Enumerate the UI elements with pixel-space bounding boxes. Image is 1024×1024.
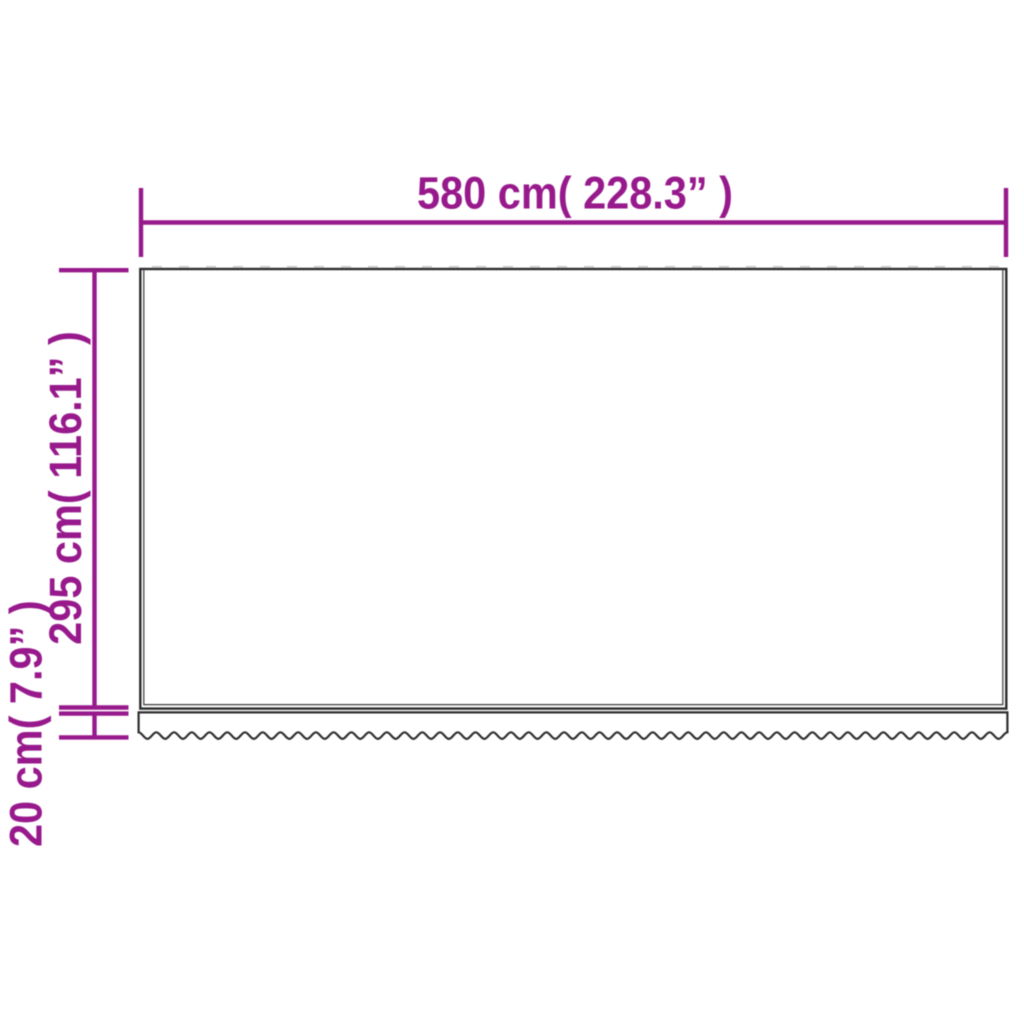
svg-text:295 cm( 116.1” ): 295 cm( 116.1” ) xyxy=(41,331,91,645)
svg-text:20 cm( 7.9” ): 20 cm( 7.9” ) xyxy=(2,600,52,847)
svg-text:580 cm( 228.3” ): 580 cm( 228.3” ) xyxy=(417,169,733,219)
